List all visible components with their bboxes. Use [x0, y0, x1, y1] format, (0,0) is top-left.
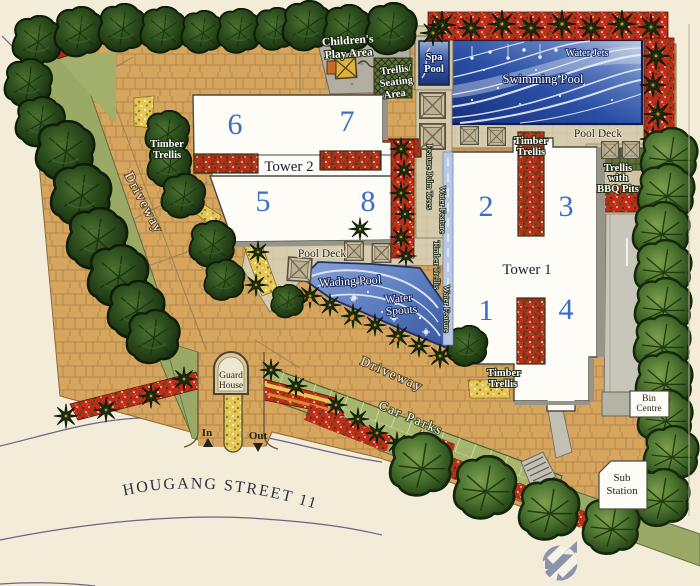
svg-text:Water Feature: Water Feature [442, 285, 452, 333]
svg-text:5: 5 [256, 185, 271, 218]
svg-text:2: 2 [479, 190, 494, 223]
svg-text:Timber Trellis: Timber Trellis [432, 241, 442, 290]
svg-text:Trellis: Trellis [153, 150, 181, 161]
svg-text:Tower 2: Tower 2 [264, 159, 313, 175]
svg-text:Pool Deck: Pool Deck [574, 128, 622, 140]
svg-text:BBQ Pits: BBQ Pits [597, 184, 639, 195]
svg-text:Spa: Spa [426, 52, 444, 63]
svg-text:Timber: Timber [514, 136, 548, 147]
svg-text:Pool: Pool [424, 64, 444, 75]
svg-text:8: 8 [361, 185, 376, 218]
svg-text:Timber: Timber [150, 139, 184, 150]
svg-text:Swimming Pool: Swimming Pool [503, 72, 584, 86]
svg-text:House: House [219, 381, 243, 391]
svg-text:Feature Palm Trees: Feature Palm Trees [425, 144, 435, 210]
svg-text:Out: Out [249, 430, 268, 442]
svg-text:Sub: Sub [613, 472, 631, 484]
svg-text:with: with [608, 173, 628, 184]
svg-text:6: 6 [228, 108, 243, 141]
svg-text:Station: Station [606, 485, 638, 497]
svg-text:3: 3 [559, 190, 574, 223]
svg-text:Centre: Centre [636, 404, 661, 414]
svg-text:Tower 1: Tower 1 [502, 262, 551, 278]
svg-text:Water Feature: Water Feature [438, 186, 448, 234]
svg-text:Pool Deck: Pool Deck [298, 248, 346, 260]
svg-text:Timber: Timber [487, 368, 521, 379]
svg-text:Bin: Bin [642, 394, 656, 404]
svg-text:Water Jets: Water Jets [565, 48, 608, 59]
svg-text:Trellis: Trellis [517, 147, 545, 158]
svg-text:Trellis: Trellis [489, 379, 517, 390]
svg-text:1: 1 [479, 294, 494, 327]
svg-text:7: 7 [340, 105, 355, 138]
svg-text:4: 4 [559, 293, 574, 326]
svg-text:In: In [202, 427, 212, 439]
svg-text:Guard: Guard [219, 371, 243, 381]
